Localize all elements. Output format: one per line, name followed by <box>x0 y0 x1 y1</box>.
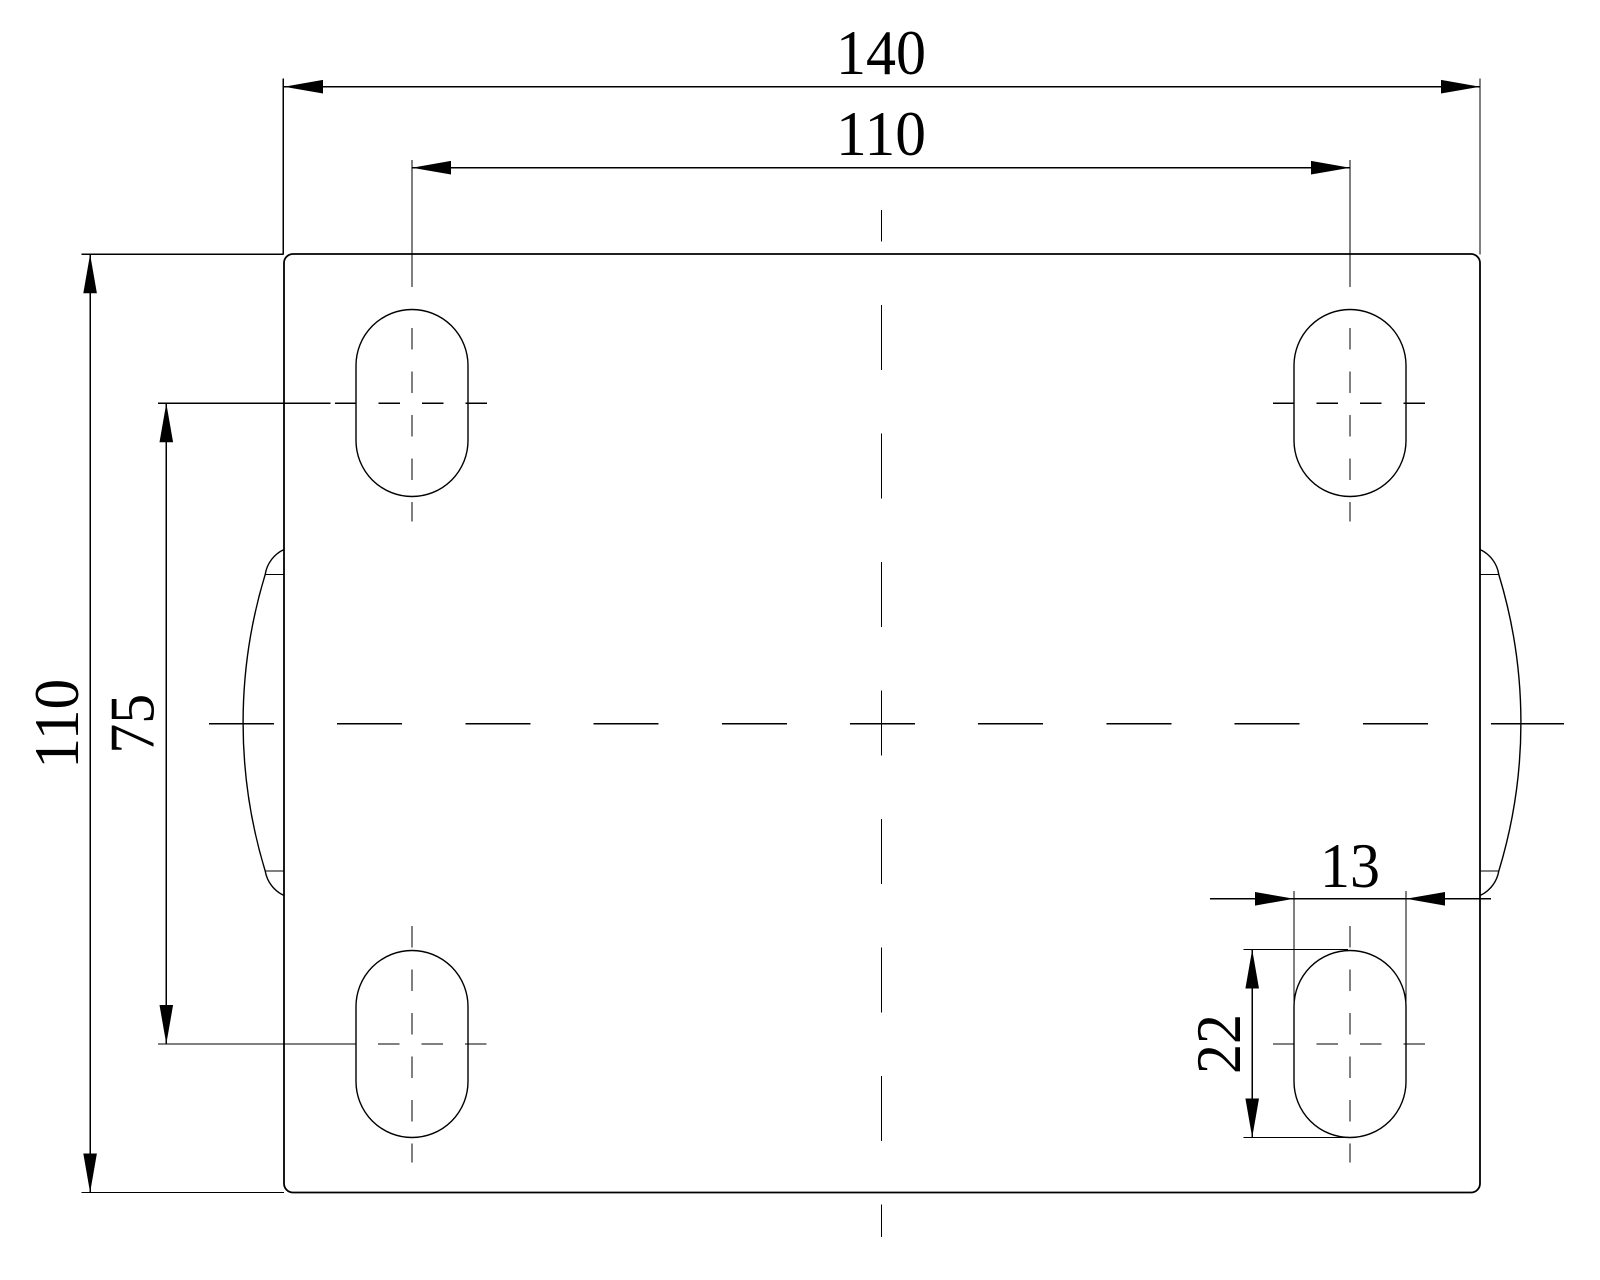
svg-text:110: 110 <box>836 98 926 169</box>
svg-text:140: 140 <box>836 17 926 88</box>
svg-text:22: 22 <box>1183 1014 1254 1074</box>
svg-text:110: 110 <box>21 679 92 769</box>
svg-text:13: 13 <box>1320 830 1380 901</box>
svg-text:75: 75 <box>96 694 167 754</box>
